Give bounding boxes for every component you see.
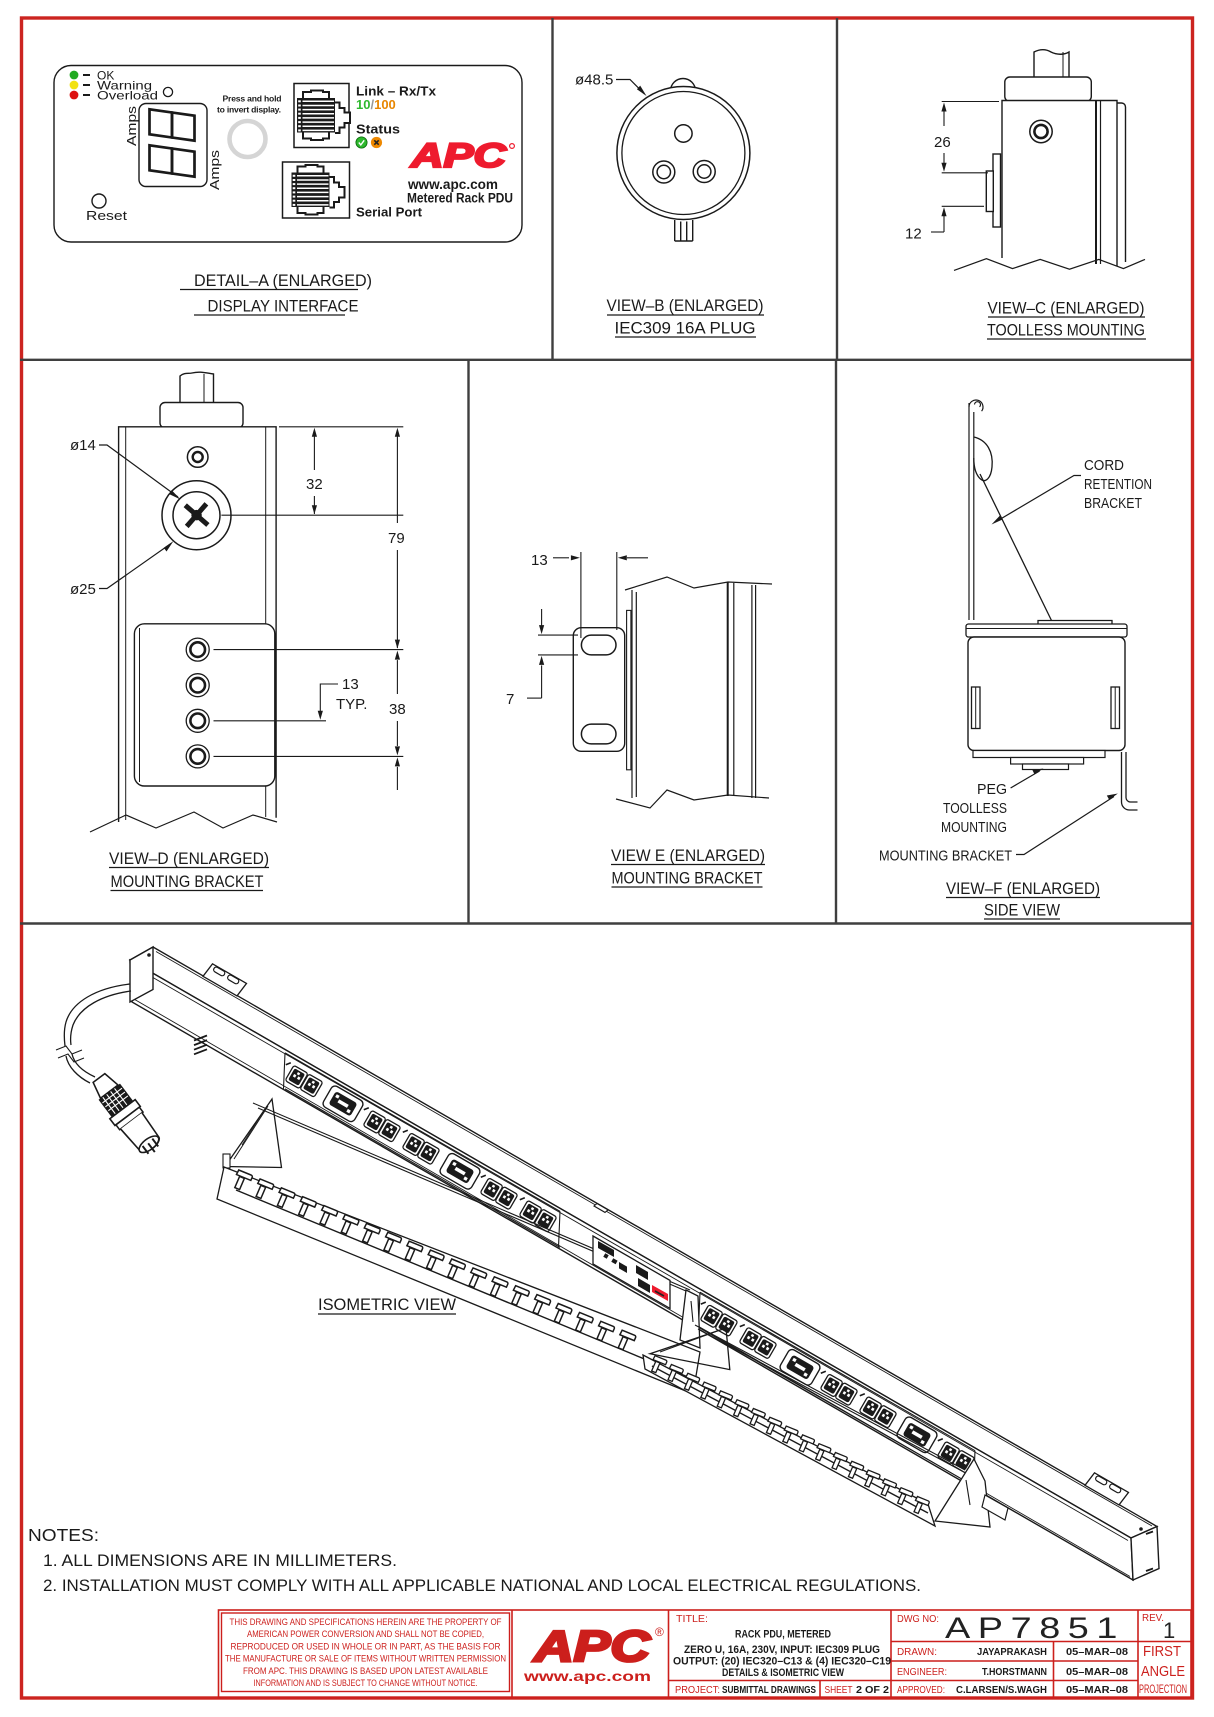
- svg-text:26: 26: [934, 134, 951, 151]
- svg-text:1. ALL DIMENSIONS ARE IN: 1. ALL DIMENSIONS ARE IN MILLIMETERS.: [43, 1552, 397, 1570]
- svg-text:13: 13: [531, 552, 548, 569]
- svg-text:DWG NO:: DWG NO:: [897, 1614, 939, 1625]
- svg-text:Press and hold: Press and hold: [223, 94, 282, 104]
- svg-text:FROM APC. THIS DRAWING IS: FROM APC. THIS DRAWING IS BASED UPON LAT…: [243, 1666, 488, 1676]
- svg-text:VIEW–D (ENLARGED): VIEW–D (ENLARGED): [109, 849, 269, 868]
- svg-text:AP7851: AP7851: [945, 1612, 1125, 1645]
- svg-text:OUTPUT: (20) IEC320–C13 &: OUTPUT: (20) IEC320–C13 & (4) IEC320–C19: [673, 1656, 891, 1668]
- svg-text:CORD: CORD: [1084, 457, 1124, 474]
- svg-text:ZERO U, 16A, 230V, INPUT: ZERO U, 16A, 230V, INPUT: IEC309 PLUG: [684, 1644, 880, 1656]
- svg-text:Reset: Reset: [86, 208, 127, 223]
- svg-text:REV.: REV.: [1142, 1613, 1164, 1624]
- svg-text:ø14: ø14: [70, 437, 96, 454]
- svg-text:APC: APC: [410, 137, 507, 175]
- svg-text:JAYAPRAKASH: JAYAPRAKASH: [977, 1646, 1047, 1658]
- svg-text:10/100: 10/100: [356, 97, 396, 112]
- svg-text:VIEW–C (ENLARGED): VIEW–C (ENLARGED): [988, 299, 1145, 318]
- svg-text:12: 12: [905, 226, 922, 243]
- svg-text:SIDE VIEW: SIDE VIEW: [984, 901, 1060, 920]
- svg-text:RACK PDU, METERED: RACK PDU, METERED: [735, 1629, 831, 1641]
- svg-text:TITLE:: TITLE:: [676, 1614, 708, 1625]
- svg-text:PROJECT:: PROJECT:: [675, 1684, 720, 1696]
- svg-text:IEC309 16A PLUG: IEC309 16A PLUG: [615, 319, 756, 338]
- svg-text:C.LARSEN/S.WAGH: C.LARSEN/S.WAGH: [956, 1684, 1047, 1696]
- svg-text:MOUNTING BRACKET: MOUNTING BRACKET: [879, 848, 1012, 865]
- svg-text:ENGINEER:: ENGINEER:: [897, 1666, 947, 1678]
- svg-text:RETENTION: RETENTION: [1084, 476, 1152, 493]
- svg-text:05–MAR–08: 05–MAR–08: [1066, 1666, 1128, 1678]
- svg-text:DETAIL–A (ENLARGED): DETAIL–A (ENLARGED): [194, 271, 372, 290]
- svg-text:SHEET: SHEET: [825, 1684, 853, 1696]
- svg-text:®: ®: [655, 1625, 664, 1639]
- svg-text:79: 79: [388, 530, 405, 547]
- svg-text:T.HORSTMANN: T.HORSTMANN: [982, 1666, 1047, 1678]
- svg-text:THE MANUFACTURE OR SALE OF: THE MANUFACTURE OR SALE OF ITEMS WITHOUT…: [225, 1654, 506, 1664]
- svg-text:ø25: ø25: [70, 581, 96, 598]
- svg-text:MOUNTING BRACKET: MOUNTING BRACKET: [612, 869, 763, 888]
- svg-text:PROJECTION: PROJECTION: [1139, 1684, 1187, 1696]
- svg-text:MOUNTING: MOUNTING: [941, 819, 1007, 836]
- svg-text:VIEW–F (ENLARGED): VIEW–F (ENLARGED): [946, 879, 1100, 898]
- svg-text:Serial Port: Serial Port: [356, 205, 423, 220]
- svg-text:Status: Status: [356, 122, 400, 137]
- svg-text:7: 7: [506, 691, 514, 708]
- svg-text:AMERICAN POWER CONVERSION A: AMERICAN POWER CONVERSION AND SHALL NOT …: [247, 1629, 484, 1639]
- svg-text:38: 38: [389, 701, 406, 718]
- svg-text:INFORMATION AND IS SUBJECT: INFORMATION AND IS SUBJECT TO CHANGE WIT…: [254, 1678, 478, 1688]
- svg-text:2 OF 2: 2 OF 2: [856, 1684, 889, 1696]
- svg-text:TOOLLESS: TOOLLESS: [943, 800, 1007, 817]
- svg-text:ANGLE: ANGLE: [1141, 1663, 1185, 1680]
- svg-text:VIEW E (ENLARGED): VIEW E (ENLARGED): [611, 846, 765, 865]
- svg-text:DISPLAY INTERFACE: DISPLAY INTERFACE: [208, 297, 359, 316]
- svg-text:DETAILS & ISOMETRIC VIEW: DETAILS & ISOMETRIC VIEW: [722, 1667, 844, 1679]
- svg-text:32: 32: [306, 476, 323, 493]
- svg-text:PEG: PEG: [977, 781, 1007, 798]
- svg-text:THIS DRAWING AND SPECIFICAT: THIS DRAWING AND SPECIFICATIONS HEREIN A…: [230, 1617, 502, 1627]
- svg-text:APPROVED:: APPROVED:: [897, 1684, 945, 1696]
- svg-text:ISOMETRIC VIEW: ISOMETRIC VIEW: [318, 1295, 456, 1314]
- svg-text:NOTES:: NOTES:: [28, 1525, 99, 1545]
- svg-text:05–MAR–08: 05–MAR–08: [1066, 1646, 1128, 1658]
- svg-text:13: 13: [342, 676, 359, 693]
- svg-text:VIEW–B (ENLARGED): VIEW–B (ENLARGED): [607, 296, 764, 315]
- svg-text:www.apc.com: www.apc.com: [523, 1669, 651, 1684]
- svg-text:REPRODUCED OR USED IN WHOL: REPRODUCED OR USED IN WHOLE OR IN PART, …: [231, 1641, 501, 1651]
- svg-text:05–MAR–08: 05–MAR–08: [1066, 1684, 1128, 1696]
- svg-text:ø48.5: ø48.5: [575, 72, 613, 89]
- svg-text:APC: APC: [533, 1622, 652, 1671]
- svg-text:BRACKET: BRACKET: [1084, 495, 1142, 512]
- svg-text:Amps: Amps: [207, 149, 222, 190]
- svg-text:SUBMITTAL DRAWINGS: SUBMITTAL DRAWINGS: [722, 1684, 816, 1696]
- svg-text:Metered Rack PDU: Metered Rack PDU: [407, 191, 513, 206]
- svg-text:1: 1: [1163, 1618, 1175, 1643]
- svg-text:2. INSTALLATION MUST COMPLY: 2. INSTALLATION MUST COMPLY WITH ALL APP…: [43, 1577, 921, 1595]
- svg-text:Amps: Amps: [124, 105, 139, 146]
- svg-text:DRAWN:: DRAWN:: [897, 1646, 937, 1658]
- svg-text:to invert display.: to invert display.: [217, 105, 281, 115]
- svg-text:TYP.: TYP.: [336, 696, 367, 713]
- svg-text:MOUNTING BRACKET: MOUNTING BRACKET: [111, 872, 264, 891]
- svg-text:TOOLLESS MOUNTING: TOOLLESS MOUNTING: [987, 321, 1145, 340]
- svg-text:FIRST: FIRST: [1143, 1643, 1181, 1660]
- svg-text:Overload: Overload: [97, 89, 158, 103]
